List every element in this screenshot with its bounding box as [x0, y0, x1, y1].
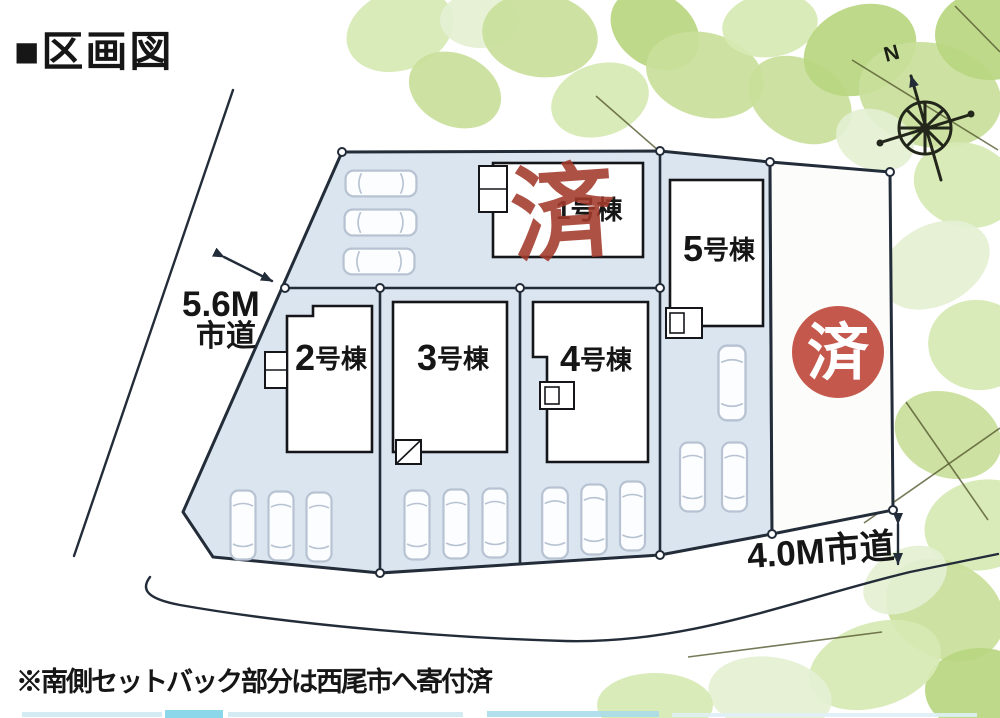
bottom-photo-strip [22, 710, 977, 718]
page-title: ■区画図 [14, 28, 173, 75]
sold-stamp-right-lot: 済 [792, 306, 884, 398]
footnote: ※南側セットバック部分は西尾市へ寄付済 [16, 666, 494, 697]
car-outline [405, 491, 430, 560]
car-outline [718, 346, 745, 421]
car-outline [722, 443, 747, 512]
building-2-label: 2号棟 [295, 337, 368, 378]
road-type-label-west: 市道 [196, 319, 256, 353]
site-plan-page: 1号棟 2号棟 3号棟 4号棟 5号棟 済 済 5.6M 市道 4.0M市道 [0, 0, 1000, 718]
width-arrow-west [224, 257, 272, 281]
car-outline [269, 492, 294, 561]
car-outline [680, 443, 705, 512]
car-outline [307, 493, 332, 562]
site-plan-svg: 1号棟 2号棟 3号棟 4号棟 5号棟 済 済 5.6M 市道 4.0M市道 [0, 0, 1000, 718]
car-outline [620, 482, 645, 551]
sold-stamp-building1: 済 [507, 148, 620, 278]
car-outline [542, 488, 568, 559]
car-outline [344, 249, 415, 275]
building-3-label: 3号棟 [417, 337, 490, 378]
building-2 [287, 306, 372, 452]
building-4-label: 4号棟 [560, 338, 633, 379]
building-5-label: 5号棟 [683, 228, 756, 269]
car-outline [581, 485, 606, 555]
car-outline [483, 489, 508, 558]
building-3 [393, 302, 507, 452]
road-width-label-west: 5.6M [182, 285, 260, 324]
car-outline [231, 491, 256, 560]
sold-stamp-right-lot-text: 済 [807, 316, 870, 389]
car-outline [444, 490, 469, 559]
car-outline [346, 171, 417, 197]
car-outline [345, 209, 417, 235]
